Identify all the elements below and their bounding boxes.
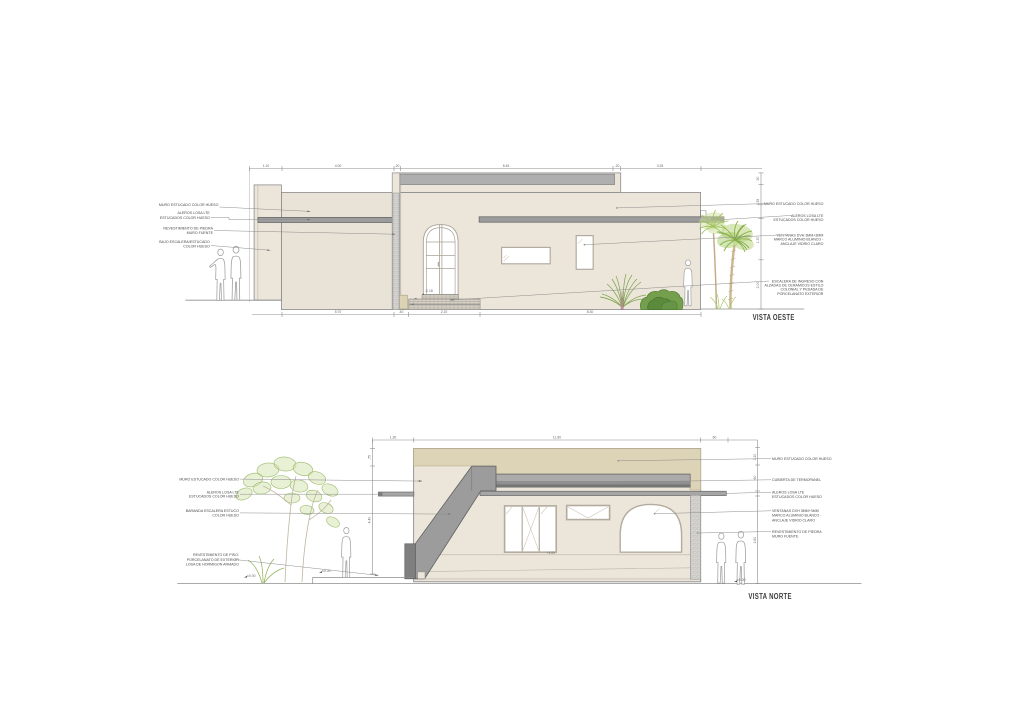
svg-text:.60: .60	[712, 436, 717, 440]
svg-text:PORCELANATO EXTERIOR: PORCELANATO EXTERIOR	[777, 292, 824, 296]
svg-text:ESTUCADOS COLOR HUESO: ESTUCADOS COLOR HUESO	[189, 494, 239, 498]
svg-text:MURO FUENTE: MURO FUENTE	[772, 534, 799, 538]
svg-text:4.00: 4.00	[335, 164, 342, 168]
svg-text:1.70: 1.70	[756, 237, 760, 244]
svg-text:ESTUCADOS COLOR HUESO: ESTUCADOS COLOR HUESO	[773, 218, 823, 222]
svg-text:VENTANAS DVH 3MM+3MM: VENTANAS DVH 3MM+3MM	[772, 509, 819, 513]
svg-text:MURO ESTUCADO COLOR HUESO: MURO ESTUCADO COLOR HUESO	[179, 477, 239, 481]
svg-text:.20: .20	[395, 164, 400, 168]
svg-text:VISTA NORTE: VISTA NORTE	[748, 592, 792, 601]
svg-text:1.35: 1.35	[756, 199, 760, 206]
svg-text:PORCELANATO DE EXTERIOR: PORCELANATO DE EXTERIOR	[187, 558, 240, 562]
svg-text:3.25: 3.25	[657, 164, 664, 168]
svg-text:.75: .75	[368, 455, 372, 460]
svg-text:2.60: 2.60	[753, 537, 757, 544]
svg-text:MURO ESTUCADO COLOR HUESO: MURO ESTUCADO COLOR HUESO	[159, 203, 219, 207]
svg-text:±0.00: ±0.00	[247, 574, 256, 578]
svg-text:REVESTIMIENTO DE PISO:: REVESTIMIENTO DE PISO:	[193, 553, 239, 557]
svg-text:2.10: 2.10	[441, 310, 448, 314]
svg-text:ANCLAJE VIDRIO CLARO: ANCLAJE VIDRIO CLARO	[780, 242, 823, 246]
svg-text:MURO ESTUCADO COLOR HUESO: MURO ESTUCADO COLOR HUESO	[764, 202, 824, 206]
svg-text:4.40: 4.40	[368, 517, 372, 524]
svg-text:ALEROS LOSA LTE: ALEROS LOSA LTE	[772, 491, 805, 495]
svg-text:1.30: 1.30	[390, 436, 397, 440]
svg-text:8.30: 8.30	[587, 310, 594, 314]
svg-text:+1.00: +1.00	[547, 551, 556, 555]
svg-text:CUBIERTA DE TERMOPANEL: CUBIERTA DE TERMOPANEL	[772, 478, 821, 482]
svg-text:BAJO ESCALERA/ESTUCADO: BAJO ESCALERA/ESTUCADO	[159, 240, 210, 244]
svg-text:COLOR HUESO: COLOR HUESO	[212, 514, 239, 518]
svg-text:8.45: 8.45	[503, 164, 510, 168]
svg-text:1.10: 1.10	[263, 164, 270, 168]
svg-text:.40: .40	[399, 310, 404, 314]
svg-text:REVESTIMIENTO DE PIEDRA: REVESTIMIENTO DE PIEDRA	[163, 226, 213, 230]
svg-text:MURO ESTUCADO COLOR HUESO: MURO ESTUCADO COLOR HUESO	[772, 457, 832, 461]
svg-text:ANCLAJE VIDRIO CLARO: ANCLAJE VIDRIO CLARO	[772, 518, 815, 522]
svg-text:REVESTIMIENTO DE PIEDRA: REVESTIMIENTO DE PIEDRA	[772, 530, 822, 534]
svg-text:COLOR HUESO: COLOR HUESO	[183, 244, 210, 248]
svg-text:-0.18: -0.18	[425, 289, 433, 293]
svg-text:BARANDA ESCALERA ESTUCO: BARANDA ESCALERA ESTUCO	[186, 509, 239, 513]
svg-text:2.00: 2.00	[756, 282, 760, 289]
svg-text:MARCO ALUMINIO BLANCO -: MARCO ALUMINIO BLANCO -	[772, 514, 822, 518]
svg-text:.50: .50	[756, 177, 760, 182]
svg-text:11.80: 11.80	[553, 436, 561, 440]
svg-text:ESTUCADOS COLOR HUESO: ESTUCADOS COLOR HUESO	[772, 495, 822, 499]
svg-text:ESTUCADOS COLOR HUESO: ESTUCADOS COLOR HUESO	[160, 216, 210, 220]
svg-text:VISTA OESTE: VISTA OESTE	[753, 313, 795, 322]
svg-text:5.70: 5.70	[335, 310, 342, 314]
svg-text:ALEROS LOSA LTE: ALEROS LOSA LTE	[178, 211, 211, 215]
svg-text:1.20: 1.20	[753, 454, 757, 461]
svg-text:LOSA DE HORMIGON ARMADO: LOSA DE HORMIGON ARMADO	[186, 563, 239, 567]
svg-text:±0.00: ±0.00	[737, 578, 746, 582]
svg-text:.60: .60	[753, 476, 757, 481]
svg-text:.20: .20	[615, 164, 620, 168]
svg-text:MURO FUENTE: MURO FUENTE	[187, 231, 214, 235]
